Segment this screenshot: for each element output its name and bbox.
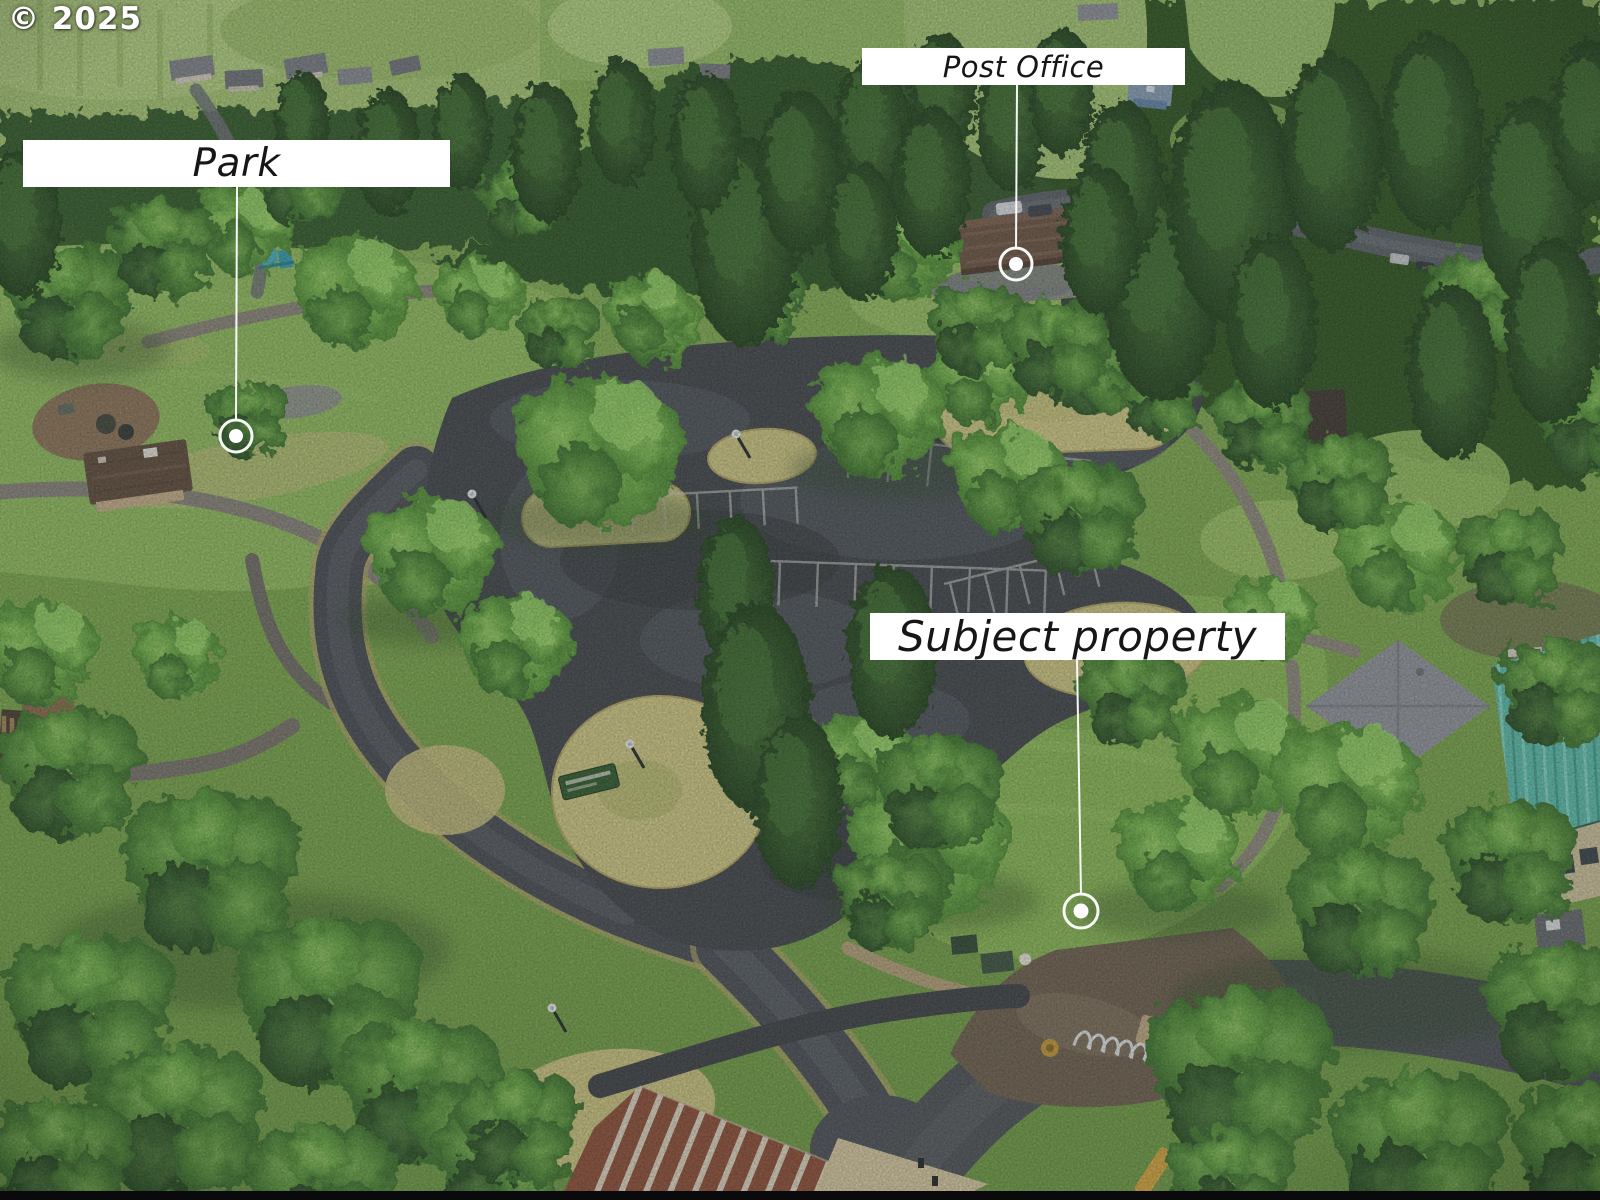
- subject-property-label-text: Subject property: [898, 612, 1257, 661]
- post-office-label-text: Post Office: [943, 50, 1105, 84]
- park-label-text: Park: [192, 141, 280, 186]
- post-office-label: Post Office: [862, 48, 1185, 85]
- copyright-watermark: © 2025: [8, 1, 142, 37]
- subject-property-label: Subject property: [870, 613, 1285, 660]
- annotated-aerial-photo: Park Post Office Subject property © 2025: [0, 0, 1600, 1200]
- park-label: Park: [23, 140, 450, 187]
- photo-bottom-edge: [0, 1191, 1600, 1200]
